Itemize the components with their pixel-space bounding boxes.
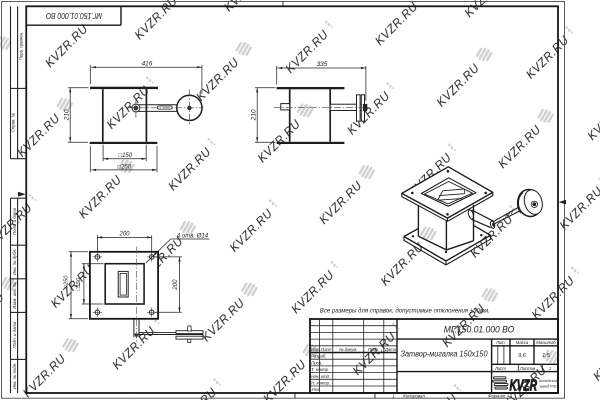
svg-text:Перв. примен.: Перв. примен. [19,32,24,61]
svg-text:Листов: Листов [519,366,536,371]
svg-text:Т. контр.: Т. контр. [311,367,329,372]
svg-text:Затвор-мигалка 150х150: Затвор-мигалка 150х150 [401,350,489,359]
svg-text:□150: □150 [118,153,132,159]
svg-text:МГ.150.01.000 ВО: МГ.150.01.000 ВО [444,324,515,335]
svg-text:□250: □250 [63,275,69,289]
svg-text:Все размеры для справок, допус: Все размеры для справок, допустимые откл… [320,306,490,314]
svg-text:Разраб.: Разраб. [311,354,326,359]
svg-text:Н. контр.: Н. контр. [311,381,330,386]
svg-text:335: 335 [317,61,328,68]
svg-text:Масса: Масса [516,340,529,345]
svg-text:завод РЗО: завод РЗО [538,383,558,388]
svg-text:KVZR: KVZR [510,377,538,394]
svg-text:Нач. отд.: Нач. отд. [311,374,330,379]
svg-text:Лит.: Лит. [495,340,506,345]
svg-text:1:5: 1:5 [542,353,551,359]
svg-text:416: 416 [142,60,153,67]
svg-text:Подп. и дата: Подп. и дата [12,207,17,235]
svg-text:9,6: 9,6 [518,353,527,359]
svg-text:1: 1 [549,366,551,371]
svg-text:Инв. № дубл.: Инв. № дубл. [12,249,17,275]
svg-text:Утв.: Утв. [311,387,321,392]
svg-text:200: 200 [118,232,130,238]
svg-text:210: 210 [251,109,258,121]
svg-text:210: 210 [64,109,71,121]
svg-text:□150: □150 [76,277,82,291]
svg-text:Справ. №: Справ. № [11,112,16,132]
svg-text:Изм: Изм [311,347,319,352]
svg-text:Дата: Дата [384,347,397,352]
svg-text:4 отв. Ø14: 4 отв. Ø14 [177,233,209,239]
svg-text:Лист: Лист [494,366,506,371]
svg-text:Масштаб: Масштаб [536,340,556,345]
svg-text:Пров.: Пров. [311,360,322,365]
svg-text:Формат А3: Формат А3 [488,393,513,398]
svg-text:МГ.150.01.000 ВО: МГ.150.01.000 ВО [46,11,102,20]
svg-text:Лист: Лист [320,347,332,352]
svg-text:Копировал: Копировал [403,393,425,398]
svg-text:Инв. № подл.: Инв. № подл. [12,363,17,390]
svg-text:Подп.: Подп. [368,347,379,352]
svg-text:Копейский: Копейский [539,378,559,383]
svg-text:200: 200 [173,279,179,291]
svg-text:Взам. инв. №: Взам. инв. № [12,282,17,309]
svg-text:Подп. и дата: Подп. и дата [12,321,17,349]
svg-text:№ докум.: № докум. [339,347,357,352]
svg-text:□250: □250 [117,164,131,170]
